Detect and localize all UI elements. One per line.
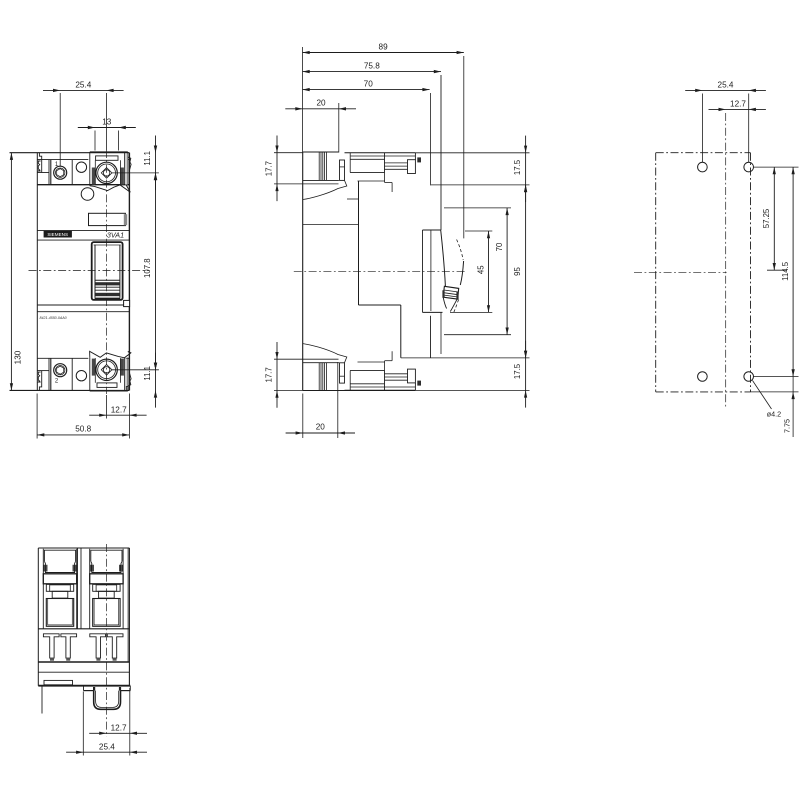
svg-text:70: 70 <box>364 80 374 89</box>
svg-text:95: 95 <box>513 267 522 276</box>
svg-text:17.7: 17.7 <box>264 161 273 176</box>
svg-text:12.7: 12.7 <box>730 100 746 109</box>
svg-text:SIEMENS: SIEMENS <box>47 232 68 237</box>
svg-text:8421-4550-0AA0: 8421-4550-0AA0 <box>40 316 67 320</box>
svg-text:12.7: 12.7 <box>111 405 127 414</box>
svg-text:25.4: 25.4 <box>75 81 91 90</box>
svg-text:25.4: 25.4 <box>718 81 734 90</box>
svg-text:11.1: 11.1 <box>143 151 152 166</box>
svg-text:20: 20 <box>316 423 326 432</box>
svg-text:13: 13 <box>102 118 112 127</box>
svg-text:50.8: 50.8 <box>75 425 91 434</box>
svg-text:17.7: 17.7 <box>264 367 273 382</box>
svg-text:114.5: 114.5 <box>781 261 790 281</box>
svg-text:12.7: 12.7 <box>111 724 127 733</box>
svg-text:17.5: 17.5 <box>513 363 522 379</box>
svg-text:17.5: 17.5 <box>513 159 522 175</box>
svg-text:70: 70 <box>495 242 504 251</box>
svg-text:ø4.2: ø4.2 <box>767 409 781 418</box>
svg-text:130: 130 <box>14 350 23 364</box>
svg-text:3VA1: 3VA1 <box>107 230 124 239</box>
svg-text:75.8: 75.8 <box>364 62 380 71</box>
svg-text:11.1: 11.1 <box>143 366 152 381</box>
svg-text:45: 45 <box>476 265 485 274</box>
svg-text:20: 20 <box>316 98 326 107</box>
svg-text:107.8: 107.8 <box>143 258 152 278</box>
svg-text:7.75: 7.75 <box>782 419 791 433</box>
svg-text:57.25: 57.25 <box>762 208 771 228</box>
svg-text:25.4: 25.4 <box>99 742 115 751</box>
svg-text:89: 89 <box>379 42 389 51</box>
